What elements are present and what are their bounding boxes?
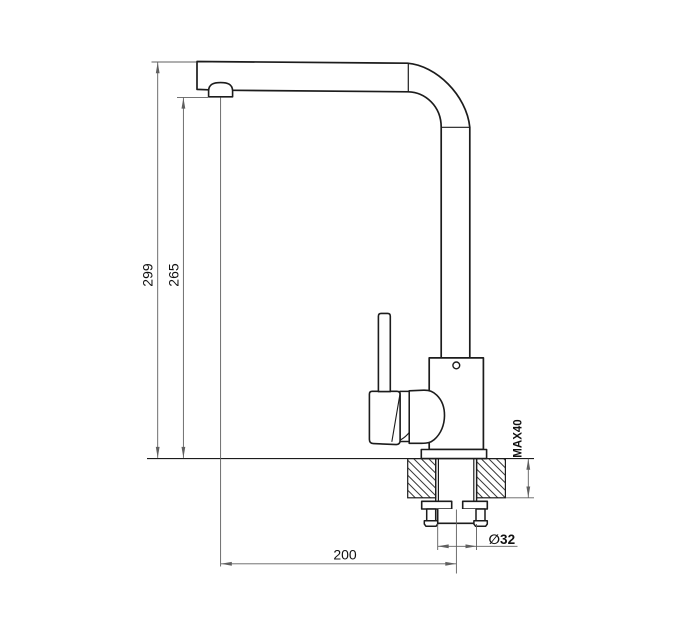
- aerator: [209, 83, 233, 97]
- cartridge-housing: [409, 390, 444, 443]
- mounting-stud-left: [427, 509, 436, 521]
- counter-hatch-block-left: [408, 459, 436, 498]
- mounting-nut-right: [474, 521, 487, 527]
- mounting-nut-left: [424, 521, 437, 527]
- shank-lower: [438, 509, 477, 523]
- dim-max-thickness-label: MAX40: [513, 419, 525, 457]
- mounting-bracket-left: [422, 501, 452, 509]
- counter-hatch-block-right: [477, 459, 506, 498]
- arrow-265-top: [182, 98, 186, 109]
- dim-spout-reach-label: 200: [333, 546, 357, 562]
- dim-total-height: [152, 62, 197, 458]
- drawing-canvas: 299 265 200 ∅32 MAX40: [0, 0, 680, 630]
- faucet-outline: [197, 62, 487, 459]
- arrow-d32-left: [438, 544, 449, 548]
- arrow-max40-bottom: [526, 487, 530, 498]
- arrow-200-right: [445, 562, 456, 566]
- arrow-d32-right: [466, 544, 477, 548]
- set-screw-hole: [453, 362, 460, 369]
- mounting-bracket-right: [463, 501, 488, 509]
- arrow-max40-top: [526, 459, 530, 470]
- handle-lever: [378, 313, 390, 391]
- faucet-technical-drawing: 299 265 200 ∅32 MAX40: [0, 0, 680, 630]
- arrow-265-bottom: [182, 447, 186, 458]
- dim-max-thickness: [506, 459, 534, 498]
- arrow-299-bottom: [156, 447, 160, 458]
- dim-total-height-label: 299: [140, 263, 156, 287]
- arrow-299-top: [156, 62, 160, 73]
- base-flange: [421, 450, 486, 459]
- dim-outlet-height: [177, 97, 208, 458]
- mounting-stud-right: [476, 509, 485, 521]
- spout-path: [197, 62, 470, 359]
- dim-hole-diameter-label: ∅32: [489, 532, 516, 547]
- dim-outlet-height-label: 265: [165, 263, 181, 287]
- arrow-200-left: [221, 562, 232, 566]
